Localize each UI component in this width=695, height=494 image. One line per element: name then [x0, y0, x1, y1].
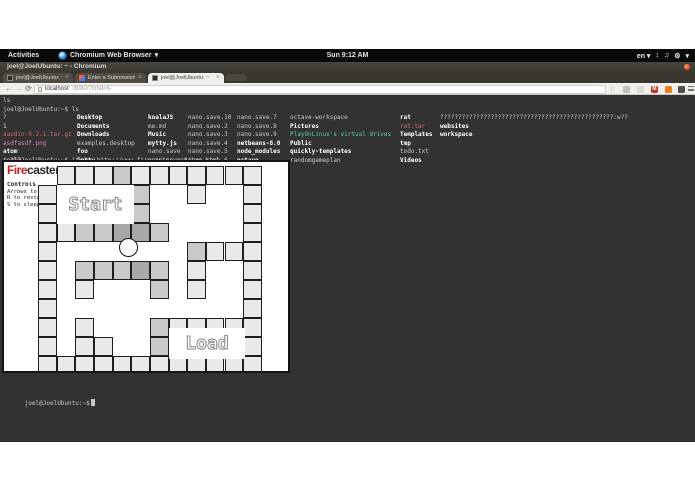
maze-cell — [243, 185, 262, 204]
ls-entry: Music — [148, 131, 188, 140]
reload-button[interactable]: ⟳ — [25, 84, 32, 93]
terminal-favicon — [7, 75, 13, 81]
maze-cell — [38, 280, 57, 299]
dark-extension-icon[interactable] — [678, 86, 685, 93]
clock[interactable]: Sun 9:12 AM — [327, 52, 369, 59]
maze-cell — [243, 356, 262, 373]
maze-cell — [131, 261, 150, 280]
tab-title: Enter a Submission | D — [88, 75, 135, 81]
ls-entry: nano.save.8 — [237, 123, 280, 132]
maze-cell — [187, 185, 206, 204]
ls-entry: mytty.js — [148, 140, 188, 149]
maze-cell — [243, 204, 262, 223]
network-icon[interactable]: ↕ — [655, 52, 659, 60]
ls-entry: PlayOnLinux's virtual drives — [290, 131, 391, 140]
maze-cell — [243, 166, 262, 185]
maze-cell — [57, 166, 76, 185]
maze-cell — [243, 242, 262, 261]
ls-entry: koalaJS — [148, 114, 188, 123]
maze-cell — [187, 166, 206, 185]
web-terminal[interactable]: ls joel@JoelUbuntu:~$ ls ?1aaudio-0.2.1.… — [0, 95, 695, 442]
ls-entry: foo — [77, 148, 135, 157]
maze-cell — [75, 337, 94, 356]
maze-cell — [150, 223, 169, 242]
maze-cell — [150, 261, 169, 280]
ghost-extension-icon[interactable] — [637, 86, 644, 93]
language-indicator[interactable]: en ▾ — [637, 52, 651, 60]
maze-cell — [38, 242, 57, 261]
maze-cell — [75, 356, 94, 373]
ls-entry: rat.tar — [400, 123, 433, 132]
ls-entry: nano.save.2 — [188, 123, 231, 132]
logo-fire: Fire — [7, 163, 27, 177]
ls-entry: nano.save.10 — [188, 114, 231, 123]
screenshot-stage: Activities Chromium Web Browser ▾ Sun 9:… — [0, 0, 695, 494]
forward-button[interactable]: → — [15, 84, 23, 93]
maze-cell — [131, 204, 150, 223]
ls-entry: node_modules — [237, 148, 280, 157]
tab-terminal-active[interactable]: joel@JoelUbuntu: ~ × — [148, 73, 224, 83]
maze-cell — [38, 356, 57, 373]
app-menu-caret-icon: ▾ — [155, 51, 159, 59]
window-extension-icon[interactable] — [623, 86, 630, 93]
maze-cell — [38, 185, 57, 204]
tab-close-icon[interactable]: × — [65, 75, 69, 81]
terminal-prompt-final[interactable]: joel@JoelUbuntu:~$ — [3, 392, 95, 414]
bookmark-star-icon[interactable]: ☆ — [609, 84, 616, 93]
maze-cell — [113, 261, 132, 280]
window-title: joel@JoelUbuntu: ~ - Chromium — [7, 62, 106, 72]
load-text: Load — [185, 333, 228, 354]
ls-entry: todo.txt — [400, 148, 433, 157]
controls-line: S to sleep — [7, 202, 38, 209]
maze-cell — [75, 280, 94, 299]
controls-title: Controls — [7, 182, 38, 189]
maze-cell — [94, 356, 113, 373]
maze-cell — [243, 223, 262, 242]
ls-entry: 1 — [3, 123, 72, 132]
ls-entry: nano.save.3 — [188, 131, 231, 140]
ls-entry: netbeans-8.0 — [237, 140, 280, 149]
tab-terminal-1[interactable]: joel@JoelUbuntu: ~/ × — [3, 73, 73, 83]
tab-close-icon[interactable]: × — [138, 75, 142, 81]
maze-cell — [75, 223, 94, 242]
tab-submission[interactable]: Enter a Submission | D × — [75, 73, 146, 83]
maze-cell — [131, 166, 150, 185]
maze-cell — [225, 242, 244, 261]
maze-cell — [243, 261, 262, 280]
maze-cell — [243, 280, 262, 299]
maze-cell — [57, 356, 76, 373]
maze-cell — [38, 299, 57, 318]
url-path: :8080/?cmd=ls — [72, 86, 111, 92]
ls-entry: nano.save.7 — [237, 114, 280, 123]
maze-cell — [131, 356, 150, 373]
menu-icon[interactable] — [688, 86, 694, 91]
ls-column: octave-workspacePicturesPlayOnLinux's vi… — [290, 114, 391, 166]
ls-entry: randomgameplan — [290, 157, 391, 166]
ls-entry: workspace — [440, 131, 628, 140]
activities-button[interactable]: Activities — [8, 52, 39, 59]
window-titlebar[interactable]: joel@JoelUbuntu: ~ - Chromium — [0, 62, 695, 72]
maze-cell — [187, 261, 206, 280]
tray-caret-icon[interactable]: ▾ — [685, 52, 689, 60]
ls-entry: nano.save.9 — [237, 131, 280, 140]
maze-cell — [243, 337, 262, 356]
ls-entry: octave-workspace — [290, 114, 391, 123]
terminal-favicon — [152, 75, 158, 81]
rss-extension-icon[interactable] — [665, 86, 672, 93]
tab-strip: joel@JoelUbuntu: ~/ × Enter a Submission… — [0, 72, 695, 83]
new-tab-button[interactable] — [226, 74, 246, 81]
mail-extension-icon[interactable]: M — [651, 86, 658, 93]
ls-entry: aaudio-0.2.1.tar.gz — [3, 131, 72, 140]
maze-cell — [206, 166, 225, 185]
maze-cell — [75, 261, 94, 280]
system-tray[interactable]: en ▾ ↕ ♫ ⚙ ▾ — [637, 52, 689, 60]
maze-cell — [38, 204, 57, 223]
maze-cell — [243, 299, 262, 318]
address-bar[interactable]: localhost:8080/?cmd=ls — [34, 85, 606, 94]
ls-entry: me.md — [148, 123, 188, 132]
ls-entry: websites — [440, 123, 628, 132]
start-label: Start — [57, 185, 134, 224]
ls-entry: Documents — [77, 123, 135, 132]
gnome-top-bar: Activities Chromium Web Browser ▾ Sun 9:… — [0, 49, 695, 62]
maze-cell — [113, 356, 132, 373]
chromium-icon — [58, 51, 67, 60]
ls-entry: Templates — [400, 131, 433, 140]
ls-entry: Videos — [400, 157, 433, 166]
maze-cell — [94, 166, 113, 185]
maze-cell — [187, 280, 206, 299]
tab-title: joel@JoelUbuntu: ~/ — [16, 75, 62, 81]
ls-entry: tmp — [400, 140, 433, 149]
browser-toolbar: ← → ⟳ localhost:8080/?cmd=ls ☆ M — [0, 83, 695, 95]
maze-cell — [150, 280, 169, 299]
back-button[interactable]: ← — [5, 84, 13, 93]
ls-entry: asdfasdf.png — [3, 140, 72, 149]
ls-entry: ????????????????????????????????????????… — [440, 114, 628, 123]
ls-entry: Pictures — [290, 123, 391, 132]
ls-entry: ? — [3, 114, 72, 123]
maze-cell — [94, 223, 113, 242]
maze-cell — [57, 223, 76, 242]
tab-close-icon[interactable]: × — [216, 75, 220, 81]
url-host: localhost — [45, 86, 69, 92]
volume-icon[interactable]: ♫ — [664, 52, 669, 60]
maze-cell — [38, 318, 57, 337]
ls-column: ratrat.tarTemplatestmptodo.txtVideos — [400, 114, 433, 166]
ls-entry: rat — [400, 114, 433, 123]
maze-cell — [131, 185, 150, 204]
ls-entry: quickly-templates — [290, 148, 391, 157]
maze-cell — [150, 356, 169, 373]
maze-cell — [94, 261, 113, 280]
maze-cell — [38, 223, 57, 242]
maze-cell — [38, 337, 57, 356]
ls-entry: atom — [3, 148, 72, 157]
maze-cell — [206, 242, 225, 261]
ls-entry: nano.save.4 — [188, 140, 231, 149]
window-close-button[interactable] — [684, 64, 690, 70]
maze-cell — [75, 318, 94, 337]
maze-cell — [169, 166, 188, 185]
prompt-text: joel@JoelUbuntu:~$ — [25, 400, 90, 407]
terminal-cursor — [91, 399, 95, 406]
controls-help: Controls Arrows to move R to restart S t… — [7, 182, 38, 208]
ls-entry: nano.save — [148, 148, 188, 157]
maze-cell — [225, 166, 244, 185]
ls-entry: examples.desktop — [77, 140, 135, 149]
ls-column: nano.save.7nano.save.8nano.save.9netbean… — [237, 114, 280, 166]
tab-title: joel@JoelUbuntu: ~ — [161, 75, 213, 81]
maze-cell — [94, 337, 113, 356]
terminal-prompt-ls: joel@JoelUbuntu:~$ ls — [3, 106, 79, 113]
ls-entry: nano.save.5 — [188, 148, 231, 157]
player-circle — [119, 238, 138, 257]
maze-cell — [75, 166, 94, 185]
ls-column: ????????????????????????????????????????… — [440, 114, 628, 140]
maze-cell — [150, 337, 169, 356]
app-menu[interactable]: Chromium Web Browser ▾ — [58, 51, 158, 60]
maze-cell — [150, 166, 169, 185]
settings-icon[interactable]: ⚙ — [674, 52, 680, 60]
controls-line: R to restart — [7, 195, 38, 202]
maze-cell — [38, 261, 57, 280]
start-text: Start — [68, 194, 122, 215]
maze-cell — [113, 166, 132, 185]
firecaster-game-frame[interactable]: Firecaster Controls Arrows to move R to … — [2, 160, 290, 373]
page-icon — [38, 87, 42, 92]
ls-entry: Downloads — [77, 131, 135, 140]
ls-entry: Desktop — [77, 114, 135, 123]
ls-entry: Public — [290, 140, 391, 149]
maze-cell — [150, 318, 169, 337]
devpost-favicon — [79, 75, 85, 81]
load-label[interactable]: Load — [169, 328, 245, 359]
app-menu-label: Chromium Web Browser — [70, 52, 152, 59]
maze-cell — [243, 318, 262, 337]
terminal-line: ls — [3, 97, 10, 104]
maze-cell — [187, 242, 206, 261]
